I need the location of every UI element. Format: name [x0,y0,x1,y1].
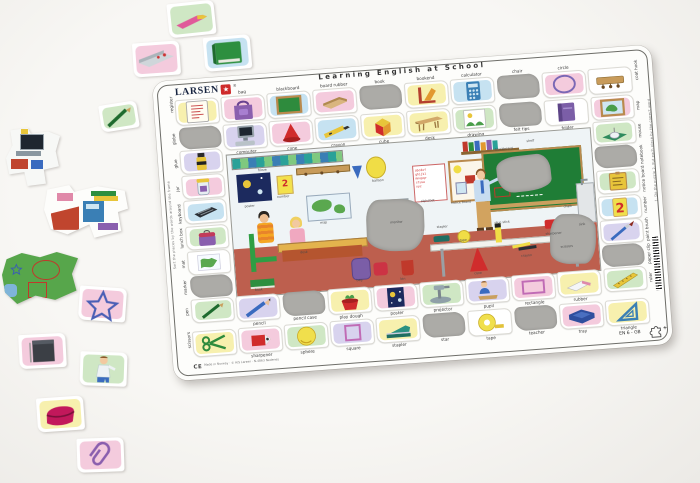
book-icon [203,34,253,72]
scene-hole-center[interactable] [365,198,425,252]
puzzle-tile-play-dough[interactable] [327,286,373,315]
alphabet-chart: abcdef ghijkl mnopqr stuvw xyz [412,163,448,202]
scene-label-notice-board: notice board [451,199,471,204]
empty-slot-chair[interactable] [497,73,541,100]
edge-instruction-right: 1. Do the puzzle 2. Put each piece by th… [647,99,659,202]
empty-slot-marker[interactable] [189,273,233,298]
map-icon [591,95,633,120]
tile-cell: sharpener [239,325,283,360]
notice-board-icon [597,168,639,193]
puzzle-tile-rubber[interactable] [556,269,602,298]
keyboard-icon [184,199,226,224]
blackboard-icon [267,91,311,118]
scene-label-glue-stick: glue stick [494,220,510,225]
puzzle-tile-board-rubber[interactable] [312,87,358,116]
empty-slot-book[interactable] [359,83,403,110]
word-label: map [635,101,641,111]
piece-card [78,285,127,322]
ruler-icon [604,266,646,291]
mouse-icon [593,120,635,145]
red-schoolbag [373,262,388,276]
word-label: mouse [637,123,644,137]
sphere-icon [285,323,329,350]
puzzle-tile-rectangle[interactable] [511,272,557,301]
loose-piece-felt-tip[interactable] [166,0,216,38]
sharpener-icon [239,326,283,353]
tile-cell: board rubber [313,81,357,116]
puzzle-tile-computer[interactable] [222,122,268,151]
puzzle-tile-crayon[interactable] [314,115,360,144]
tile-cell: poster [374,283,418,318]
word-label: number [642,196,649,213]
empty-slot-notebook[interactable] [594,143,638,168]
red-cone [468,246,488,271]
scene-label-shelf: shelf [526,139,534,144]
tile-cell: keyboard [176,198,228,226]
tile-cell: mat [180,248,232,276]
puzzle-tile-tape[interactable] [467,308,513,337]
tile-cell: star [422,311,466,346]
puzzle-tile-triangle[interactable] [605,297,651,326]
loose-piece-notebook[interactable] [18,333,67,369]
piece-card [203,34,253,72]
scene-label-desk: desk [300,250,308,255]
tile-cell: projector [420,279,464,314]
bookend-icon [405,81,449,108]
scene-label-poster: poster [244,204,254,209]
boy-pupil [255,210,276,247]
glue-icon [181,149,223,174]
word-label: jar [175,186,181,192]
rubber-icon [557,270,601,297]
tile-cell: circle [542,64,586,99]
puzzle-tile-cone[interactable] [268,118,314,147]
tile-cell: calculator [450,70,494,105]
word-label: notice board [640,166,648,193]
tile-cell [588,60,632,95]
tile-cell: pen [183,296,235,324]
bag-icon [221,95,265,122]
puzzle-tile-pen[interactable] [191,296,235,323]
register-icon [176,98,220,125]
word-label: keyboard [176,204,183,224]
puzzle-tile-pupil[interactable] [465,276,511,305]
pencil-tin-icon [132,40,181,77]
star-icon [78,285,127,322]
puzzle-tile-ruler[interactable] [603,265,647,292]
folder-icon [545,98,589,125]
piece-card [18,333,67,369]
scene-label-frieze: frieze [258,168,267,173]
tile-cell: glue [172,148,224,176]
product-code: EN 6 - GB [619,330,641,337]
paper-clip-icon [76,437,124,473]
tile-cell: sphere [285,322,329,357]
tile-cell: book [358,77,402,112]
tile-cell: blackboard [267,84,311,119]
crayon-icon [315,116,359,143]
mini-stapler [433,235,449,242]
play-dough-icon [328,287,372,314]
scene-label-map: map [320,220,327,225]
projector-icon [420,280,464,307]
puzzle-tile-circle[interactable] [541,69,587,98]
drawing-icon [453,105,497,132]
puzzle-piece-icon [649,322,664,337]
empty-slot-felt-tips[interactable] [499,101,543,128]
tile-cell: stapler [376,315,420,350]
tile-cell: bookend [404,74,448,109]
tile-cell: square [330,318,374,353]
tile-cell: mouse [592,118,644,146]
circle-icon [542,71,586,98]
piece-card [76,437,124,473]
puzzle-tile-coat-hook[interactable] [587,66,633,95]
peg-1 [304,173,307,176]
word-label: marker [182,280,189,295]
puzzle-tile-bag[interactable] [220,94,266,123]
puzzle-tile-drawing[interactable] [452,104,498,133]
loose-piece-paper-clip[interactable] [76,437,124,473]
tile-cell: rubber [557,269,601,304]
tile-cell: pencil case [282,290,326,325]
puzzle-tile-notice-board[interactable] [596,167,640,194]
square-icon [331,319,375,346]
world-map [306,192,352,221]
scene-label-sink: sink [579,222,586,226]
word-label: notebook [638,144,645,164]
loose-piece-star[interactable] [78,285,127,322]
loose-piece-scene-desk[interactable] [44,184,128,240]
rectangle-icon [512,273,556,300]
tile-cell: triangle [606,297,650,332]
pencil-icon [236,294,280,321]
piece-card [36,395,85,432]
poster-icon [374,284,418,311]
scene-label-stapler: stapler [437,224,448,229]
teacher-icon [79,351,127,387]
puzzle-tile-blackboard[interactable] [266,90,312,119]
notebook-icon [18,333,67,369]
number-icon: 2 [599,194,641,219]
pen-icon [192,298,234,323]
tile-cell: rectangle [512,272,556,307]
tape-icon [468,309,512,336]
peg-2 [320,171,323,174]
piece-card [79,351,127,387]
puzzle-tile-mat[interactable] [187,248,231,275]
puzzle-tile-poster[interactable] [373,283,419,312]
scene-label-book: book [255,287,263,292]
tile-cell: globe [171,125,223,151]
word-label: paper clip [645,243,653,264]
word-label: tape [486,335,496,342]
tile-cell: bag [221,88,265,123]
scene-label-chalk: chalk [563,204,572,209]
puzzle-tile-mouse[interactable] [592,119,636,146]
photo-background: LARSEN ★ ® Learning English at School ba… [0,0,700,483]
tile-cell: ruler [603,265,655,293]
pencil-case-icon [36,395,85,432]
ce-mark: CE [193,364,202,371]
puzzle-board: LARSEN ★ ® Learning English at School ba… [152,45,673,382]
loose-piece-pen[interactable] [98,100,140,133]
empty-slot-teacher[interactable] [514,304,558,331]
empty-slot-pencil-case[interactable] [282,290,326,317]
scene-label-alphabet: alphabet [421,198,435,203]
empty-slot-star[interactable] [422,311,466,338]
tile-cell: tray [560,301,604,336]
puzzle-tile-calculator[interactable] [450,76,496,105]
loose-piece-scene-computer[interactable] [6,128,60,186]
puzzle-tile-register[interactable] [174,97,220,126]
corner-label-coat-hook: coat hook [633,60,640,81]
cone-icon [269,119,313,146]
cube-icon [361,112,405,139]
word-label: mat [180,259,186,268]
word-label: ruler [648,272,655,282]
computer-icon [223,123,267,150]
pen-icon [98,100,140,133]
coat-hook-icon [588,67,632,94]
word-label: sphere [300,349,315,356]
puzzle-tile-desk[interactable] [406,108,452,137]
balloon [365,156,387,179]
word-label: tray [578,328,587,335]
tile-cell: notice board [596,166,648,196]
tray-icon [560,302,604,329]
puzzle-tile-scissors[interactable] [192,328,238,357]
triangle-tool-icon [606,298,650,325]
tile-cell: play dough [328,286,372,321]
piece-card [132,40,181,77]
word-label: teacher [529,329,545,336]
loose-piece-pencil-case[interactable] [36,395,85,432]
tile-cell: teacher [514,304,558,339]
word-label: pen [184,308,190,316]
piece-card [166,0,216,38]
scene-label-number: number [277,194,290,199]
puzzle-tile-pencil[interactable] [235,293,281,322]
jar-icon [183,174,225,199]
puzzle-tile-square[interactable] [329,318,375,347]
scene-label-bin: bin [400,277,405,281]
tile-cell: lunch box [178,223,230,251]
puzzle-tile-stapler[interactable] [375,315,421,344]
tile-cell [175,91,219,126]
mat-icon [188,249,230,274]
scene-label-crayon: crayon [521,253,532,258]
waste-bin [401,260,414,276]
puzzle-tile-paint-brush[interactable] [600,218,644,245]
loose-piece-scene-mat[interactable] [2,252,78,304]
puzzle-tile-jar[interactable] [181,173,225,200]
puzzle-tile-glue[interactable] [180,148,224,175]
scissors-icon [193,329,237,356]
tile-cell: pencil [236,293,280,328]
tile-cell: 2number [598,193,650,221]
felt-tip-icon [166,0,216,38]
lunch-box-icon [186,224,228,249]
tile-cell: jar [174,173,226,201]
space-poster [236,172,272,202]
scene-label-tape: tape [460,238,467,243]
puzzle-tile-number[interactable]: 2 [598,193,642,220]
tile-cell: notebook [594,143,646,169]
svg-text:2: 2 [615,201,625,217]
puzzle-tile-keyboard[interactable] [183,198,227,225]
puzzle-tile-folder[interactable] [544,97,590,126]
word-label: glue [173,159,179,168]
puzzle-tile-lunch-box[interactable] [185,223,229,250]
puzzle-tile-cube[interactable] [360,111,406,140]
tile-cell: map [590,93,642,121]
word-label: square [346,345,361,352]
word-label: lunch box [178,228,185,249]
tile-cell: pupil [466,276,510,311]
puzzle-tile-map[interactable] [590,94,634,121]
number-card: 2 [276,175,293,195]
piece-card [98,100,140,133]
tile-cell: marker [182,273,234,299]
tile-cell: chair [496,67,540,102]
word-label: star [441,336,450,343]
stapler-icon [376,316,420,343]
empty-slot-globe[interactable] [178,125,222,150]
tile-cell: paper clip [602,242,654,268]
loose-piece-book[interactable] [203,34,253,72]
board-rubber-icon [313,88,357,115]
word-label: paint brush [644,217,652,241]
word-label: globe [171,133,178,145]
word-label: stapler [392,342,407,349]
corner-label-register: register [168,96,174,112]
tile-cell: paint brush [600,217,652,245]
peg-3 [336,170,339,173]
mini-gluestick [495,223,502,242]
calculator-icon [451,77,495,104]
pupil-icon [466,277,510,304]
plus-mark: + [663,325,668,331]
puzzle-tile-sphere[interactable] [284,322,330,351]
puzzle-tile-bookend[interactable] [404,80,450,109]
tile-cell: tape [468,308,512,343]
puzzle-tile-sharpener[interactable] [238,325,284,354]
desk-icon [407,109,451,136]
puzzle-tile-tray[interactable] [559,301,605,330]
loose-piece-pencil-tin[interactable] [132,40,181,77]
scene-label-cone: cone [474,271,482,276]
loose-piece-teacher[interactable] [79,351,127,387]
paint-brush-icon [601,219,643,244]
puzzle-tile-projector[interactable] [419,279,465,308]
scene-label-balloon: balloon [372,178,384,183]
empty-slot-paper-clip[interactable] [602,243,646,268]
tile-cell [193,328,237,363]
scene-label-bag: bag [356,278,362,282]
scene-hole-right[interactable] [549,213,596,264]
pennant-flag [352,166,363,180]
